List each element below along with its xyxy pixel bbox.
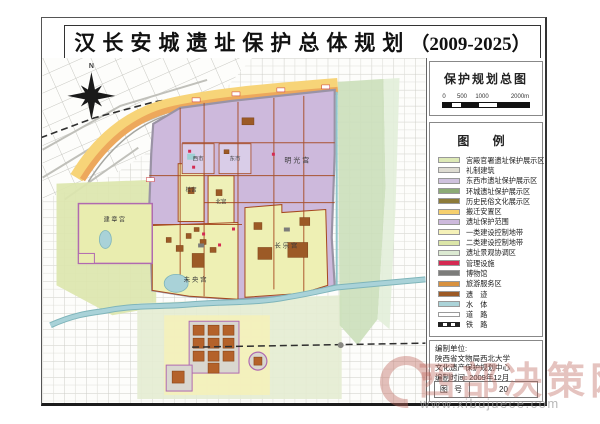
legend-item: 一类建设控制地带 [438,227,542,237]
figure-number-row: 图 号 20 [434,381,538,398]
label-jianzhanggong: 建 章 宫 [104,216,125,224]
label-guigong: 桂宫 [186,186,197,194]
legend-item: 遗 迹 [438,289,542,299]
page-title: 汉长安城遗址保护总体规划 [74,27,410,57]
credits-box: 编制单位: 陕西省文物局西北大学 文化遗产保护规划中心 编制时间: 2009年1… [429,340,543,402]
legend-label: 礼制建筑 [466,165,495,175]
scale-label-1000: 1000 [475,94,488,100]
legend-swatch-fill [438,209,460,215]
legend-label: 遗 迹 [466,289,487,299]
legend-box: 图 例 宫殿官署遗址保护展示区礼制建筑东西市遗址保护展示区环城遗址保护展示区历史… [429,122,543,337]
region-jianzhang-annex [78,253,94,263]
legend-item: 搬迁安置区 [438,206,542,216]
map-svg: N 建 章 宫 未 央 宫 长 乐 宫 北宫 桂宫 西市 东市 明 光 宫 [42,58,426,403]
legend-label: 历史民俗文化展示区 [466,196,530,206]
legend-item: 宫殿官署遗址保护展示区 [438,155,542,165]
legend-item: 历史民俗文化展示区 [438,196,542,206]
credits-text: 编制单位: 陕西省文物局西北大学 文化遗产保护规划中心 编制时间: 2009年1… [430,341,542,382]
legend-label: 遗址保护范围 [466,217,509,227]
scale-bar-segments [442,102,530,108]
map-subtitle: 保护规划总图 [430,70,542,87]
legend-item: 道 路 [438,309,542,319]
ritual-circle-square [254,357,262,365]
legend-swatch-fill [438,291,460,297]
legend-item: 东西市遗址保护展示区 [438,176,542,186]
map-subtitle-box: 保护规划总图 0 500 1000 2000m [429,61,543,116]
legend-label: 博物馆 [466,268,487,278]
legend-label: 水 体 [466,299,487,309]
label-beigong: 北宫 [216,198,227,206]
figure-number-label: 图 号 [435,382,470,397]
page: 汉长安城遗址保护总体规划 （2009-2025） [0,0,600,424]
legend-item: 礼制建筑 [438,165,542,175]
legend-item: 博物馆 [438,268,542,278]
label-mingguanggong: 明 光 宫 [284,156,309,165]
legend-label: 二类建设控制地带 [466,237,523,247]
legend-swatch-road [438,312,460,317]
side-panel: 保护规划总图 0 500 1000 2000m [427,58,545,403]
legend-label: 管理设施 [466,258,495,268]
legend-swatch-fill [438,198,460,204]
legend-item: 水 体 [438,299,542,309]
label-xishi: 西市 [193,155,204,163]
legend-item: 遗址景观协调区 [438,248,542,258]
legend-swatch-fill [438,240,460,246]
figure-number-value: 20 [470,382,537,397]
legend-item: 二类建设控制地带 [438,237,542,247]
legend-swatch-fill [438,219,460,225]
legend-swatch-fill [438,301,460,307]
legend-label: 铁 路 [466,320,487,330]
plan-sheet: 汉长安城遗址保护总体规划 （2009-2025） [41,17,547,406]
legend-swatch-fill [438,229,460,235]
legend-swatch-fill [438,157,460,163]
legend-label: 宫殿官署遗址保护展示区 [466,155,544,165]
credits-line2: 陕西省文物局西北大学 [435,354,542,364]
legend-label: 道 路 [466,309,487,319]
railway-station [338,342,344,348]
credits-line3: 文化遗产保护规划中心 [435,363,542,373]
region-changle-palace [245,205,328,298]
legend-item: 遗址保护范围 [438,217,542,227]
credits-line1: 编制单位: [435,344,542,354]
page-title-years: （2009-2025） [410,29,530,56]
legend-swatch-fill [438,250,460,256]
legend-item: 旅游服务区 [438,279,542,289]
legend-label: 旅游服务区 [466,278,502,288]
scale-labels: 0 500 1000 2000m [442,94,530,101]
label-changlegong: 长 乐 宫 [274,240,297,249]
zone-control-east [338,79,386,345]
legend-swatch-fill [438,281,460,287]
scale-bar: 0 500 1000 2000m [442,94,530,108]
legend-item: 管理设施 [438,258,542,268]
scale-label-500: 500 [457,94,467,100]
legend-label: 东西市遗址保护展示区 [466,176,537,186]
scale-label-2000: 2000m [511,94,529,100]
legend-swatch-fill [438,178,460,184]
ritual-annex-square [172,371,184,383]
legend-label: 遗址景观协调区 [466,248,516,258]
compass-north-label: N [89,63,94,70]
pond-jianzhang [99,231,111,249]
legend-swatch-fill [438,188,460,194]
legend-item: 环城遗址保护展示区 [438,186,542,196]
map-area: N 建 章 宫 未 央 宫 长 乐 宫 北宫 桂宫 西市 东市 明 光 宫 [42,58,427,403]
label-weiyanggong: 未 央 宫 [184,274,207,283]
legend-label: 一类建设控制地带 [466,227,523,237]
scale-label-0: 0 [442,94,445,100]
legend-swatch-rail [438,322,460,327]
legend-label: 环城遗址保护展示区 [466,186,530,196]
legend-list: 宫殿官署遗址保护展示区礼制建筑东西市遗址保护展示区环城遗址保护展示区历史民俗文化… [430,155,542,330]
legend-title: 图 例 [430,132,542,149]
label-dongshi: 东市 [230,155,241,163]
legend-swatch-fill [438,270,460,276]
legend-item: 铁 路 [438,320,542,330]
title-box: 汉长安城遗址保护总体规划 （2009-2025） [64,25,541,59]
legend-swatch-fill [438,167,460,173]
legend-swatch-fill [438,260,460,266]
